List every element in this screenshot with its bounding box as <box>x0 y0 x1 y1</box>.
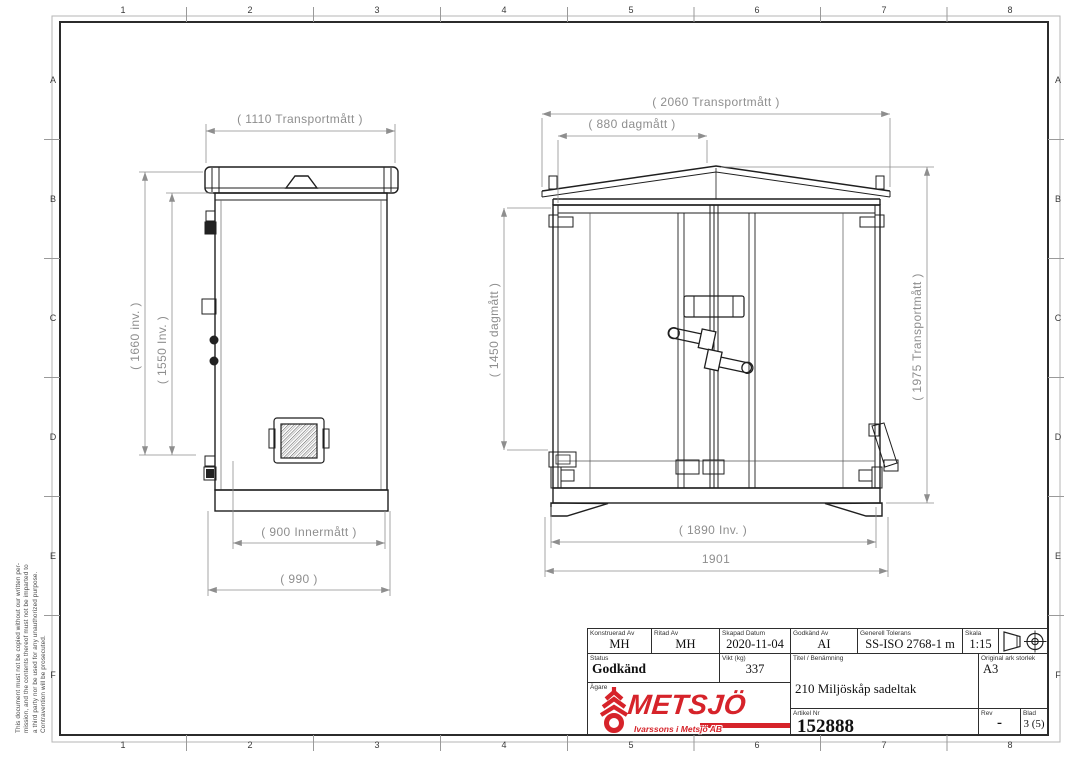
title-block: Konstruerad Av MH Ritad Av MH Skapad Dat… <box>587 628 1048 735</box>
field-scale: Skala 1:15 <box>962 628 999 654</box>
field-label: Blad <box>1021 709 1047 717</box>
field-value: AI <box>791 637 857 651</box>
grid-row: F <box>1051 670 1065 680</box>
grid-col: 7 <box>877 5 891 15</box>
grid-col: 1 <box>116 5 130 15</box>
dim-front-width-daylight: ( 880 dagmått ) <box>588 117 675 131</box>
projection-symbol-cell <box>998 628 1048 654</box>
grid-col: 4 <box>497 5 511 15</box>
field-value: Godkänd <box>588 662 719 676</box>
dim-side-width-transport: ( 1110 Transportmått ) <box>237 112 363 126</box>
field-page: Blad 3 (5) <box>1020 708 1048 735</box>
front-view <box>542 166 898 516</box>
drawing-sheet: { "sheet": { "columns": ["1","2","3","4"… <box>0 0 1080 758</box>
field-label: Original ark storlek <box>979 654 1047 662</box>
grid-col: 2 <box>243 740 257 750</box>
field-label: Godkänd Av <box>791 629 857 637</box>
dim-front-height-daylight: ( 1450 dagmått ) <box>487 283 501 377</box>
grid-col: 8 <box>1003 740 1017 750</box>
grid-row: A <box>46 75 60 85</box>
field-designed-by: Konstruerad Av MH <box>587 628 652 654</box>
article-number: 152888 <box>791 717 978 737</box>
dim-side-height-outer: ( 1660 inv. ) <box>128 302 142 370</box>
field-value: 2020-11-04 <box>720 637 790 651</box>
disclaimer-line: Contravention will be prosecuted. <box>40 583 48 733</box>
grid-col: 4 <box>497 740 511 750</box>
disclaimer-line: mission, and the contents thereof must n… <box>23 583 31 733</box>
grid-col: 3 <box>370 740 384 750</box>
grid-col: 2 <box>243 5 257 15</box>
grid-row: D <box>1051 432 1065 442</box>
dim-side-height-inner: ( 1550 Inv. ) <box>155 316 169 384</box>
drawing-title: 210 Miljöskåp sadeltak <box>791 682 978 696</box>
field-status: Status Godkänd <box>587 653 720 683</box>
dim-front-width-transport: ( 2060 Transportmått ) <box>652 95 780 109</box>
field-created-date: Skapad Datum 2020-11-04 <box>719 628 791 654</box>
field-owner: Ägare METSJÖ Ivarssons i Metsjö AB <box>587 682 791 735</box>
field-label: Generell Tolerans <box>858 629 962 637</box>
grid-col: 7 <box>877 740 891 750</box>
field-general-tolerance: Generell Tolerans SS-ISO 2768-1 m <box>857 628 963 654</box>
field-value: 3 (5) <box>1021 717 1047 731</box>
grid-col: 8 <box>1003 5 1017 15</box>
field-approved-by: Godkänd Av AI <box>790 628 858 654</box>
grid-row: E <box>1051 551 1065 561</box>
field-label: Skala <box>963 629 998 637</box>
grid-col: 6 <box>750 5 764 15</box>
dim-side-width-inner: ( 900 Innermått ) <box>261 525 357 539</box>
logo-subtitle: Ivarssons i Metsjö AB <box>634 724 722 734</box>
field-sheet-size: Original ark storlek A3 <box>978 653 1048 709</box>
metsjo-logo: METSJÖ Ivarssons i Metsjö AB <box>588 683 790 734</box>
grid-row: D <box>46 432 60 442</box>
field-value: 337 <box>720 662 790 676</box>
grid-row: A <box>1051 75 1065 85</box>
field-label: Titel / Benämning <box>791 654 978 662</box>
field-drawn-by: Ritad Av MH <box>651 628 720 654</box>
grid-col: 5 <box>624 5 638 15</box>
field-label: Vikt (kg) <box>720 654 790 662</box>
side-view-dimensions: ( 1110 Transportmått ) ( 1660 inv. ) ( 1… <box>128 112 395 596</box>
field-value: MH <box>652 637 719 651</box>
first-angle-projection-icon <box>999 629 1047 653</box>
grid-row: C <box>1051 313 1065 323</box>
field-value: SS-ISO 2768-1 m <box>858 637 962 651</box>
field-label: Skapad Datum <box>720 629 790 637</box>
logo-name: METSJÖ <box>626 689 748 721</box>
field-weight: Vikt (kg) 337 <box>719 653 791 683</box>
dim-side-width-base: ( 990 ) <box>280 572 317 586</box>
dim-front-width-inner: ( 1890 Inv. ) <box>679 523 747 537</box>
copyright-disclaimer: This document must not be copied without… <box>15 583 49 733</box>
disclaimer-line: This document must not be copied without… <box>15 583 23 733</box>
field-value: - <box>979 717 1020 729</box>
grid-col: 3 <box>370 5 384 15</box>
door-holder <box>869 423 898 471</box>
field-value: MH <box>588 637 651 651</box>
grid-col: 1 <box>116 740 130 750</box>
grid-row: B <box>1051 194 1065 204</box>
side-view <box>202 167 398 511</box>
dim-front-height-transport: ( 1975 Transportmått ) <box>910 273 924 401</box>
disclaimer-line: a third party nor be used for any unauth… <box>32 583 40 733</box>
grid-col: 6 <box>750 740 764 750</box>
field-article-number: Artikel Nr 152888 <box>790 708 979 735</box>
field-value: 1:15 <box>963 637 998 651</box>
grid-col: 5 <box>624 740 638 750</box>
grid-row: E <box>46 551 60 561</box>
dim-front-width-outer: 1901 <box>702 552 730 566</box>
door-handles <box>666 296 754 378</box>
field-title: Titel / Benämning 210 Miljöskåp sadeltak <box>790 653 979 709</box>
field-revision: Rev - <box>978 708 1021 735</box>
field-label: Ritad Av <box>652 629 719 637</box>
grid-row: C <box>46 313 60 323</box>
grid-row: B <box>46 194 60 204</box>
vent-grille <box>269 418 329 463</box>
field-value: A3 <box>979 662 1047 676</box>
field-label: Konstruerad Av <box>588 629 651 637</box>
